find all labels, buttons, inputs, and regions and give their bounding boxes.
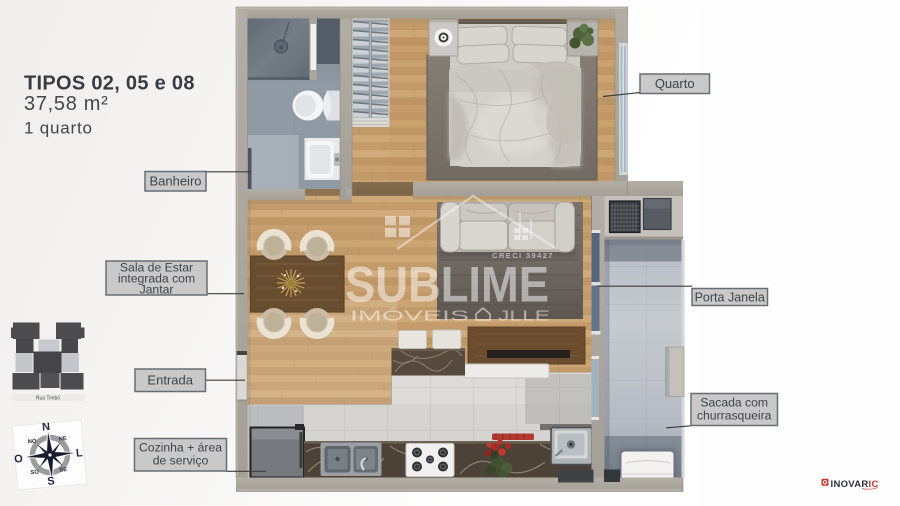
svg-text:SUBLIME: SUBLIME (345, 257, 549, 313)
svg-text:NE: NE (58, 436, 67, 443)
svg-text:Cozinha + área: Cozinha + área (139, 441, 222, 455)
svg-text:NO: NO (28, 439, 38, 446)
svg-text:Sacada com: Sacada com (700, 396, 768, 410)
svg-text:Banheiro: Banheiro (149, 174, 201, 189)
svg-text:IMÓVEIS: IMÓVEIS (350, 308, 469, 325)
svg-text:TIPOS 02, 05 e 08: TIPOS 02, 05 e 08 (24, 73, 195, 95)
svg-text:SE: SE (59, 467, 67, 474)
svg-text:O: O (14, 453, 24, 466)
svg-text:Rua Timbó: Rua Timbó (36, 396, 60, 402)
svg-text:churrasqueira: churrasqueira (697, 409, 772, 423)
svg-text:37,58 m²: 37,58 m² (24, 93, 109, 115)
svg-text:Jantar: Jantar (140, 283, 174, 297)
svg-text:JLLE: JLLE (498, 308, 550, 325)
svg-text:SO: SO (30, 470, 39, 477)
svg-text:de serviço: de serviço (153, 454, 209, 468)
svg-text:1 quarto: 1 quarto (24, 119, 93, 138)
svg-text:S: S (47, 475, 55, 488)
svg-text:INOVARIC: INOVARIC (831, 479, 879, 490)
svg-text:Porta Janela: Porta Janela (695, 291, 765, 305)
svg-text:Quarto: Quarto (655, 76, 695, 91)
svg-text:L: L (75, 447, 83, 460)
svg-text:Entrada: Entrada (147, 373, 193, 388)
svg-text:N: N (42, 421, 51, 434)
